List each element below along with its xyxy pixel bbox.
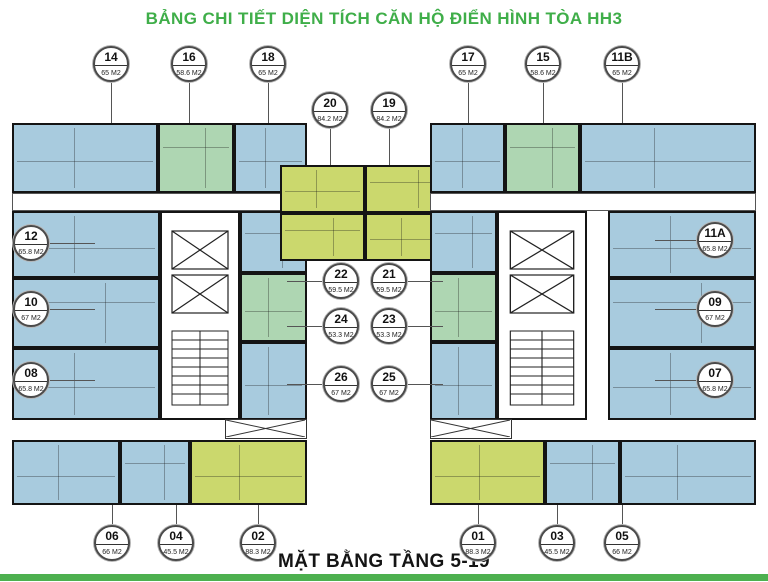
leader-line-19 (389, 128, 390, 165)
unit-badge-26: 26 67 M2 (323, 366, 359, 402)
leader-line-11A (655, 240, 697, 241)
apartment-06-region (12, 440, 120, 505)
unit-badge-22: 22 59.5 M2 (323, 263, 359, 299)
leader-line-11B (622, 82, 623, 123)
unit-badge-02: 02 88.3 M2 (240, 525, 276, 561)
unit-number: 04 (160, 527, 192, 545)
apartment-22-region (280, 213, 365, 261)
footer-green-bar (0, 574, 768, 581)
leader-line-02 (258, 505, 259, 525)
service-duct-right (430, 419, 512, 439)
leader-line-04 (176, 505, 177, 525)
leader-line-09 (655, 309, 697, 310)
core-right-svg (499, 213, 585, 418)
corridor-right (430, 193, 756, 211)
unit-number: 23 (373, 310, 405, 328)
unit-badge-10: 10 67 M2 (13, 291, 49, 327)
leader-line-21 (407, 281, 443, 282)
unit-number: 03 (541, 527, 573, 545)
unit-badge-11B: 11B 65 M2 (604, 46, 640, 82)
leader-line-01 (478, 505, 479, 525)
unit-number: 12 (15, 227, 47, 245)
unit-number: 22 (325, 265, 357, 283)
leader-line-08 (49, 380, 95, 381)
leader-line-10 (49, 309, 95, 310)
unit-badge-14: 14 65 M2 (93, 46, 129, 82)
leader-line-22 (287, 281, 323, 282)
apartment-16-region (158, 123, 234, 193)
unit-number: 18 (252, 48, 284, 66)
unit-area: 65 M2 (606, 66, 638, 80)
apartment-09-region (608, 278, 756, 348)
unit-area: 59.5 M2 (373, 283, 405, 297)
unit-area: 88.3 M2 (242, 545, 274, 559)
unit-badge-15: 15 58.6 M2 (525, 46, 561, 82)
unit-area: 66 M2 (96, 545, 128, 559)
service-duct-right-icon (431, 420, 510, 437)
apartment-24-region (240, 273, 307, 342)
unit-number: 19 (373, 94, 405, 112)
apartment-01-region (430, 440, 545, 505)
unit-area: 88.3 M2 (462, 545, 494, 559)
unit-number: 25 (373, 368, 405, 386)
unit-badge-16: 16 58.6 M2 (171, 46, 207, 82)
unit-badge-24: 24 53.3 M2 (323, 308, 359, 344)
unit-area: 67 M2 (325, 386, 357, 400)
unit-number: 15 (527, 48, 559, 66)
unit-area: 53.3 M2 (373, 328, 405, 342)
core-left (160, 211, 240, 420)
service-duct-left-icon (226, 420, 305, 437)
leader-line-17 (468, 82, 469, 123)
unit-badge-18: 18 65 M2 (250, 46, 286, 82)
apartment-23-region (430, 273, 497, 342)
unit-area: 65.8 M2 (699, 382, 731, 396)
staircase-icon (172, 331, 228, 405)
unit-number: 14 (95, 48, 127, 66)
unit-area: 65.8 M2 (15, 245, 47, 259)
unit-area: 67 M2 (15, 311, 47, 325)
unit-area: 58.6 M2 (173, 66, 205, 80)
unit-badge-11A: 11A 65.8 M2 (697, 222, 733, 258)
unit-number: 10 (15, 293, 47, 311)
unit-area: 53.3 M2 (325, 328, 357, 342)
unit-area: 84.2 M2 (314, 112, 346, 126)
elevator-shaft-icon (172, 231, 228, 313)
leader-line-25 (407, 384, 443, 385)
unit-area: 67 M2 (699, 311, 731, 325)
unit-badge-25: 25 67 M2 (371, 366, 407, 402)
unit-badge-20: 20 84.2 M2 (312, 92, 348, 128)
unit-badge-08: 08 65.8 M2 (13, 362, 49, 398)
apartment-17-region (430, 123, 505, 193)
unit-badge-23: 23 53.3 M2 (371, 308, 407, 344)
unit-number: 06 (96, 527, 128, 545)
unit-area: 66 M2 (606, 545, 638, 559)
leader-line-03 (557, 505, 558, 525)
leader-line-18 (268, 82, 269, 123)
unit-number: 17 (452, 48, 484, 66)
unit-number: 05 (606, 527, 638, 545)
unit-number: 11A (699, 224, 731, 242)
apartment-11B-region (580, 123, 756, 193)
unit-badge-19: 19 84.2 M2 (371, 92, 407, 128)
core-left-svg (162, 213, 238, 418)
apartment-07-region (608, 348, 756, 420)
unit-number: 26 (325, 368, 357, 386)
apartment-14-region (12, 123, 158, 193)
apartment-25-region (430, 342, 497, 420)
unit-number: 24 (325, 310, 357, 328)
apartment-26-region (240, 342, 307, 420)
unit-badge-06: 06 66 M2 (94, 525, 130, 561)
apartment-11A-region (608, 211, 756, 278)
unit-number: 16 (173, 48, 205, 66)
unit-number: 21 (373, 265, 405, 283)
leader-line-07 (655, 380, 697, 381)
unit-area: 65 M2 (95, 66, 127, 80)
unit-area: 65.8 M2 (699, 242, 731, 256)
leader-line-06 (112, 505, 113, 525)
unit-badge-01: 01 88.3 M2 (460, 525, 496, 561)
leader-line-12 (49, 243, 95, 244)
leader-line-16 (189, 82, 190, 123)
unit-badge-03: 03 45.5 M2 (539, 525, 575, 561)
unit-badge-12: 12 65.8 M2 (13, 225, 49, 261)
leader-line-05 (622, 505, 623, 525)
unit-area: 67 M2 (373, 386, 405, 400)
unit-area: 45.5 M2 (160, 545, 192, 559)
elevator-shaft-icon (510, 231, 573, 313)
service-duct-left (225, 419, 307, 439)
apartment-15-region (505, 123, 580, 193)
unit-badge-04: 04 45.5 M2 (158, 525, 194, 561)
leader-line-23 (407, 326, 443, 327)
apartment-04-region (120, 440, 190, 505)
unit-number: 01 (462, 527, 494, 545)
unit-number: 08 (15, 364, 47, 382)
leader-line-20 (330, 128, 331, 165)
page-title: BẢNG CHI TIẾT DIỆN TÍCH CĂN HỘ ĐIỂN HÌNH… (0, 9, 768, 29)
unit-number: 11B (606, 48, 638, 66)
unit-badge-05: 05 66 M2 (604, 525, 640, 561)
apartment-02-region (190, 440, 307, 505)
unit-badge-09: 09 67 M2 (697, 291, 733, 327)
staircase-icon (510, 331, 573, 405)
apartment-inner-right-region (430, 211, 497, 273)
leader-line-24 (287, 326, 323, 327)
leader-line-15 (543, 82, 544, 123)
unit-area: 45.5 M2 (541, 545, 573, 559)
unit-area: 65.8 M2 (15, 382, 47, 396)
unit-area: 65 M2 (252, 66, 284, 80)
unit-badge-07: 07 65.8 M2 (697, 362, 733, 398)
unit-area: 58.6 M2 (527, 66, 559, 80)
unit-number: 09 (699, 293, 731, 311)
core-right (497, 211, 587, 420)
corridor-left (12, 193, 307, 211)
unit-number: 20 (314, 94, 346, 112)
apartment-03-region (545, 440, 620, 505)
unit-badge-17: 17 65 M2 (450, 46, 486, 82)
floor-plan-canvas: BẢNG CHI TIẾT DIỆN TÍCH CĂN HỘ ĐIỂN HÌNH… (0, 0, 768, 582)
unit-number: 07 (699, 364, 731, 382)
unit-area: 59.5 M2 (325, 283, 357, 297)
apartment-05-region (620, 440, 756, 505)
leader-line-26 (287, 384, 323, 385)
unit-number: 02 (242, 527, 274, 545)
apartment-20-region (280, 165, 365, 213)
unit-area: 65 M2 (452, 66, 484, 80)
unit-area: 84.2 M2 (373, 112, 405, 126)
leader-line-14 (111, 82, 112, 123)
unit-badge-21: 21 59.5 M2 (371, 263, 407, 299)
